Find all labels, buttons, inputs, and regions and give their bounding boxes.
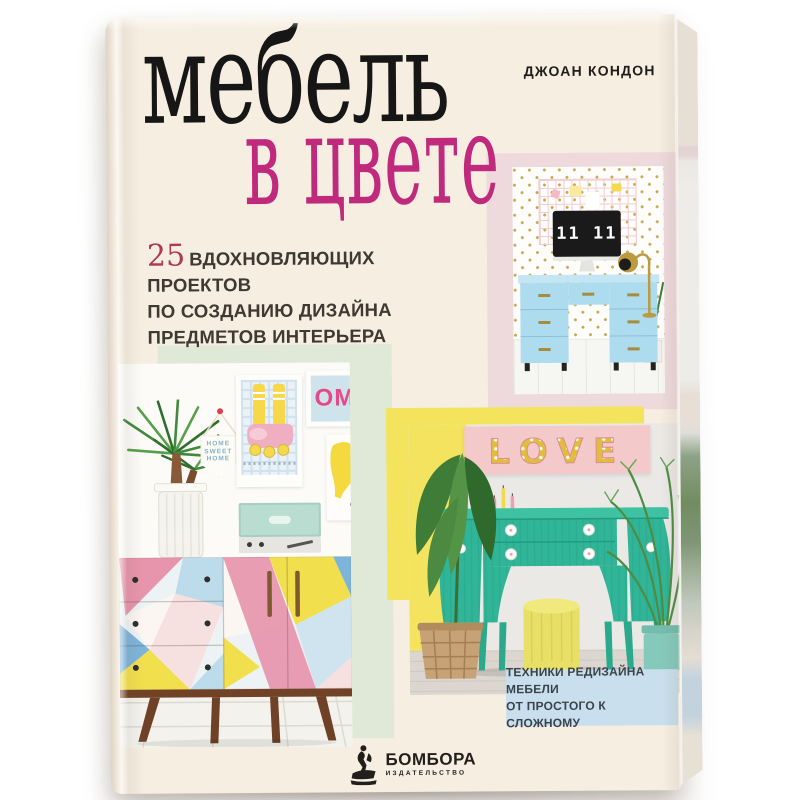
publisher-logo: БОМБОРА ИЗДАТЕЛЬСТВО <box>348 737 476 790</box>
subtitle-line-1: 25ВДОХНОВЛЯЮЩИХ ПРОЕКТОВ <box>147 242 467 299</box>
desk-caster <box>562 363 567 371</box>
desk-caster <box>651 362 656 370</box>
om-poster-text: OM <box>311 375 353 421</box>
triangle-mosaic <box>119 556 352 690</box>
photo-console-scene: LOVE LOVE <box>408 423 680 695</box>
desk-center-drawer <box>568 283 609 305</box>
memo-note <box>586 192 600 210</box>
sock <box>253 384 265 426</box>
subtitle-line-3: ПРЕДМЕТОВ ИНТЕРЬЕРА <box>147 323 467 351</box>
tonearm <box>287 540 313 548</box>
bombora-surfer-icon <box>348 743 378 785</box>
desk-caster <box>525 363 530 371</box>
monitor-chin <box>553 256 621 260</box>
palm-plant <box>602 451 680 674</box>
skate-wheel <box>277 444 289 456</box>
badge-line-2: ОТ ПРОСТОГО К СЛОЖНОМУ <box>506 697 666 732</box>
wood-legs <box>138 696 336 743</box>
banana-plant-in-basket <box>408 436 508 683</box>
desk-caster <box>614 362 619 370</box>
subtitle: 25ВДОХНОВЛЯЮЩИХ ПРОЕКТОВ ПО СОЗДАНИЮ ДИЗ… <box>147 242 468 351</box>
yellow-abstract-poster <box>326 434 352 520</box>
author-name: ДЖОАН КОНДОН <box>524 62 656 79</box>
drawer-handle <box>628 347 640 350</box>
memo-note <box>550 189 560 199</box>
sock <box>273 384 285 426</box>
photo-gallery-scene: HOME SWEET HOME <box>118 362 353 748</box>
publisher-name: БОМБОРА <box>385 750 476 768</box>
roller-skates-poster <box>236 375 303 487</box>
book-front-cover: ДЖОАН КОНДОН мебель в цвете 25ВДОХНОВЛЯЮ… <box>105 14 680 794</box>
drawer-handle <box>582 293 594 296</box>
memo-note <box>569 186 581 196</box>
wood-rail <box>120 688 352 698</box>
badge-techniques: ТЕХНИКИ РЕДИЗАЙНА МЕБЕЛИ ОТ ПРОСТОГО К С… <box>506 669 678 726</box>
memo-note <box>611 183 621 191</box>
om-poster: OM <box>306 370 353 426</box>
roller-skates-art <box>241 380 298 475</box>
gold-desk-lamp <box>613 244 658 322</box>
record-player <box>239 497 321 560</box>
photo-desk-scene: 11 11 <box>512 166 665 394</box>
book-title-line2: в цвете <box>244 97 501 224</box>
product-photo-background: ДЖОАН КОНДОН мебель в цвете 25ВДОХНОВЛЯЮ… <box>0 0 800 800</box>
book: ДЖОАН КОНДОН мебель в цвете 25ВДОХНОВЛЯЮ… <box>105 14 700 794</box>
geometric-sideboard <box>119 556 352 748</box>
publisher-tagline: ИЗДАТЕЛЬСТВО <box>386 769 477 777</box>
knob <box>259 542 264 547</box>
monitor-flip-clock: 11 11 <box>553 210 621 256</box>
subtitle-line-2: ПО СОЗДАНИЮ ДИЗАЙНА <box>147 297 467 325</box>
record-player-lid <box>239 503 321 538</box>
badge-line-1: ТЕХНИКИ РЕДИЗАЙНА МЕБЕЛИ <box>506 663 666 698</box>
clock-time: 11 11 <box>556 223 617 243</box>
record-player-base <box>239 537 321 554</box>
drawer-handle <box>538 294 550 297</box>
drawer-handle <box>538 321 550 324</box>
desk-left-pedestal <box>520 283 569 363</box>
skate-wheel <box>249 444 261 456</box>
knob <box>247 542 252 547</box>
squiggle-text <box>243 462 295 465</box>
skate-wheel <box>263 446 275 458</box>
monitor-stand <box>579 261 595 272</box>
subtitle-number: 25 <box>147 238 189 273</box>
drawer-handle <box>539 348 551 351</box>
